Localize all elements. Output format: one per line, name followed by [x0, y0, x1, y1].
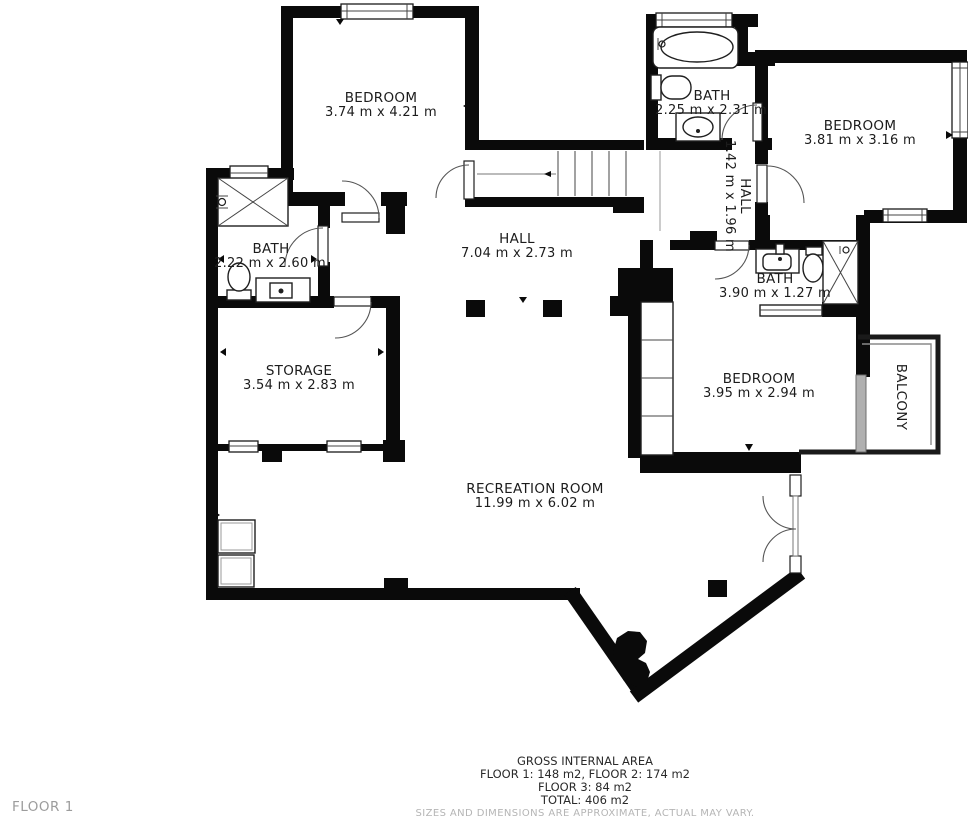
bathtub-icon [653, 27, 738, 68]
total-area-line: TOTAL: 406 m2 [416, 794, 755, 807]
floor-areas-line: FLOOR 1: 148 m2, FLOOR 2: 174 m2 [416, 768, 755, 781]
toilet-icon-right-bath [803, 247, 823, 282]
window-bedroom1-top [341, 4, 413, 19]
french-doors-recreation [763, 475, 801, 573]
window-bedroom2-bottom [883, 209, 927, 222]
room-label-hall-main: HALL 7.04 m x 2.73 m [461, 231, 573, 261]
svg-text:3.74 m x 4.21 m: 3.74 m x 4.21 m [325, 105, 437, 120]
room-label-bedroom-1: BEDROOM 3.74 m x 4.21 m [325, 90, 437, 120]
gross-area-title: GROSS INTERNAL AREA [416, 755, 755, 768]
svg-text:HALL: HALL [737, 178, 753, 214]
door-bedroom-2 [757, 165, 804, 203]
svg-text:RECREATION ROOM: RECREATION ROOM [466, 481, 603, 497]
svg-text:3.95 m x 2.94 m: 3.95 m x 2.94 m [703, 386, 815, 401]
floor-number-label: FLOOR 1 [12, 799, 74, 815]
svg-text:2.25 m x 2.31 m: 2.25 m x 2.31 m [655, 103, 767, 118]
door-bedroom-1 [342, 181, 379, 222]
floorplan-canvas: BEDROOM 3.74 m x 4.21 m BATH 2.25 m x 2.… [0, 0, 968, 824]
window-storage-bottom-1 [229, 441, 258, 452]
stair-direction-arrow [544, 171, 551, 177]
gross-area-summary: GROSS INTERNAL AREA FLOOR 1: 148 m2, FLO… [416, 755, 755, 820]
wardrobe-icon [760, 305, 822, 316]
room-label-bath-left: BATH 2.22 m x 2.60 m [214, 241, 326, 271]
svg-text:3.81 m x 3.16 m: 3.81 m x 3.16 m [804, 133, 916, 148]
svg-text:HALL: HALL [499, 231, 535, 247]
cabinet-icon-1 [218, 520, 255, 553]
door-corridor [436, 161, 474, 199]
svg-text:1.42 m x 1.96 m: 1.42 m x 1.96 m [722, 140, 737, 252]
toilet-icon-top-bath [651, 75, 691, 100]
window-bath-top [656, 13, 732, 27]
svg-text:7.04 m x 2.73 m: 7.04 m x 2.73 m [461, 246, 573, 261]
window-storage-bottom-2 [327, 441, 361, 452]
room-label-storage: STORAGE 3.54 m x 2.83 m [243, 363, 355, 393]
svg-text:BEDROOM: BEDROOM [824, 118, 897, 134]
sink-icon-right-bath [756, 244, 799, 273]
svg-text:3.54 m x 2.83 m: 3.54 m x 2.83 m [243, 378, 355, 393]
svg-text:2.22 m x 2.60 m: 2.22 m x 2.60 m [214, 256, 326, 271]
cabinet-icon-2 [218, 555, 254, 587]
room-label-hall-upper: HALL 1.42 m x 1.96 m [722, 140, 753, 252]
svg-text:3.90 m x 1.27 m: 3.90 m x 1.27 m [719, 286, 831, 301]
room-label-bedroom-3: BEDROOM 3.95 m x 2.94 m [703, 371, 815, 401]
disclaimer-text: SIZES AND DIMENSIONS ARE APPROXIMATE, AC… [416, 808, 755, 820]
walls [206, 6, 967, 697]
floor3-area-line: FLOOR 3: 84 m2 [416, 781, 755, 794]
svg-text:BALCONY: BALCONY [893, 364, 909, 431]
svg-text:11.99 m x 6.02 m: 11.99 m x 6.02 m [475, 496, 596, 511]
closet-shelves [641, 302, 673, 455]
floorplan-page: BEDROOM 3.74 m x 4.21 m BATH 2.25 m x 2.… [0, 0, 968, 824]
svg-text:BATH: BATH [693, 88, 730, 104]
staircase [477, 151, 660, 231]
room-label-bedroom-2: BEDROOM 3.81 m x 3.16 m [804, 118, 916, 148]
svg-text:BEDROOM: BEDROOM [723, 371, 796, 387]
svg-text:BATH: BATH [252, 241, 289, 257]
chimney-mass [613, 631, 650, 687]
balcony-slider-door [856, 375, 866, 452]
door-storage [334, 297, 371, 338]
room-label-balcony: BALCONY [893, 364, 909, 431]
svg-text:BATH: BATH [756, 271, 793, 287]
window-bedroom2-right [952, 62, 968, 138]
shower-icon-left-bath [216, 178, 288, 226]
svg-text:STORAGE: STORAGE [266, 363, 332, 379]
room-label-recreation: RECREATION ROOM 11.99 m x 6.02 m [466, 481, 603, 511]
svg-text:BEDROOM: BEDROOM [345, 90, 418, 106]
sink-icon-left-bath [256, 278, 310, 302]
